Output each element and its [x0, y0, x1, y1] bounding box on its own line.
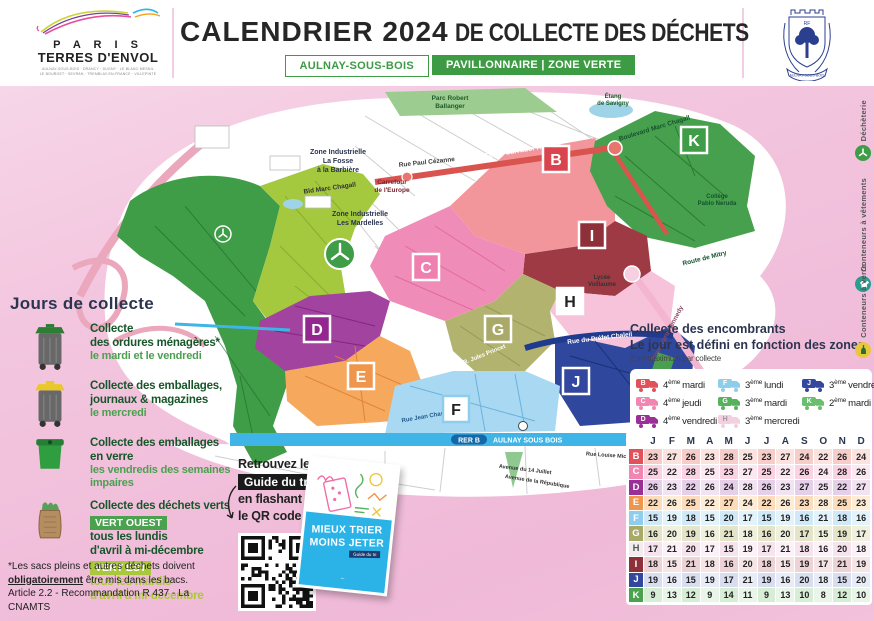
list-item-household-waste: Collectedes ordures ménagères* le mardi …	[10, 323, 234, 371]
calendar-date-cell: 24	[720, 480, 738, 494]
legend-day-text: 3èmevendredi	[829, 379, 874, 391]
calendar-date-cell: 24	[795, 449, 813, 463]
calendar-date-cell: 18	[682, 511, 700, 525]
calendar-date-cell: 22	[701, 496, 719, 510]
page-title-main: CALENDRIER 2024	[180, 16, 449, 47]
recycling-center-icon	[325, 239, 355, 269]
zone-badge: PAVILLONNAIRE | ZONE VERTE	[432, 55, 635, 75]
calendar-zone-row: B232726232825232724222624	[628, 449, 870, 463]
calendar-date-cell: 18	[852, 542, 870, 556]
calendar-date-cell: 23	[701, 449, 719, 463]
label-rer-b: RER B	[458, 438, 480, 445]
vert-ouest-badge: VERT OUEST	[90, 516, 167, 530]
calendar-date-cell: 25	[739, 449, 757, 463]
label-zi-mardelles: Zone Industrielle	[332, 211, 388, 218]
logo-terres-text: TERRES D'ENVOL	[28, 50, 168, 65]
truck-icon-zone-j: J	[802, 379, 825, 392]
calendar-zone-row: H172120171519172118162018	[628, 542, 870, 556]
svg-text:C: C	[420, 260, 432, 277]
truck-icon-zone-g: G	[718, 397, 741, 410]
footnote: *Les sacs pleins et autres déchets doive…	[8, 560, 233, 614]
calendar-month-header: M	[720, 434, 738, 448]
calendar-date-cell: 21	[833, 557, 851, 571]
calendar-zone-row: D262322262428262327252227	[628, 480, 870, 494]
svg-text:RF: RF	[804, 21, 811, 27]
calendar-date-cell: 25	[682, 496, 700, 510]
glass-container-icon	[10, 437, 90, 491]
zone-k-badge: K	[681, 127, 707, 153]
calendar-date-cell: 23	[644, 449, 662, 463]
calendar-zone-row: F151918152017151916211816	[628, 511, 870, 525]
pond-west	[283, 199, 303, 209]
legend-day-text: 3èmemercredi	[745, 415, 800, 427]
header: P A R I S TERRES D'ENVOL AULNAY-SOUS-BOI…	[0, 0, 874, 86]
calendar-date-cell: 19	[644, 573, 662, 587]
crest-banner-text: AULNAY-SOUS-BOIS	[790, 74, 826, 78]
encombrants-legend-item: D4èmevendredi	[636, 415, 718, 428]
calendar-date-cell: 23	[795, 496, 813, 510]
bulky-waste-title: Collecte des encombrants	[630, 322, 786, 336]
calendar-date-cell: 26	[644, 480, 662, 494]
calendar-date-cell: 9	[644, 588, 662, 602]
calendar-month-header: J	[758, 434, 776, 448]
calendar-date-cell: 19	[852, 557, 870, 571]
roundabout-kennedy	[624, 266, 640, 282]
calendar-date-cell: 26	[758, 480, 776, 494]
calendar-date-cell: 23	[720, 465, 738, 479]
calendar-date-cell: 17	[852, 526, 870, 540]
calendar-date-cell: 26	[663, 496, 681, 510]
truck-icon-zone-k: K	[802, 397, 825, 410]
list-item-packaging: Collecte des emballages,journaux & magaz…	[10, 380, 234, 428]
calendar-date-cell: 17	[720, 573, 738, 587]
label-lycee: Lycée	[594, 275, 611, 281]
calendar-date-cell: 27	[852, 480, 870, 494]
calendar-date-cell: 19	[776, 511, 794, 525]
calendar-date-cell: 24	[814, 465, 832, 479]
calendar-date-cell: 28	[814, 496, 832, 510]
calendar-zone-row: C252228252327252226242826	[628, 465, 870, 479]
encombrants-legend-item: J3èmevendredi	[802, 379, 872, 392]
calendar-date-cell: 11	[739, 588, 757, 602]
label-carrefour-europe: Carrefour	[377, 179, 407, 186]
zone-c-badge: C	[413, 254, 439, 280]
svg-text:G: G	[492, 322, 504, 339]
calendar-zone-letter: K	[629, 588, 643, 602]
encombrants-legend-item: G3èmemardi	[718, 397, 802, 410]
calendar-date-cell: 15	[682, 573, 700, 587]
encombrants-legend-item: F3èmelundi	[718, 379, 802, 392]
collection-days-panel: Jours de collecte Collectedes ordures mé…	[10, 294, 234, 603]
calendar-month-header: J	[644, 434, 662, 448]
svg-text:de l'Europe: de l'Europe	[374, 187, 410, 194]
truck-icon-zone-b: B	[636, 379, 659, 392]
calendar-date-cell: 25	[814, 480, 832, 494]
zone-d-badge: D	[304, 316, 330, 342]
calendar-date-cell: 15	[701, 511, 719, 525]
calendar-date-cell: 28	[833, 465, 851, 479]
calendar-date-cell: 22	[758, 496, 776, 510]
calendar-date-cell: 22	[644, 496, 662, 510]
calendar-zone-row: K91312914119131081210	[628, 588, 870, 602]
calendar-date-cell: 15	[814, 526, 832, 540]
calendar-date-cell: 21	[720, 526, 738, 540]
calendar-zone-letter: D	[629, 480, 643, 494]
svg-text:K: K	[688, 133, 700, 150]
label-parc-robert: Parc Robert	[432, 95, 470, 102]
zone-e-badge: E	[348, 363, 374, 389]
title-block: CALENDRIER 2024DE COLLECTE DES DÉCHETS A…	[180, 0, 740, 86]
calendar-date-cell: 18	[795, 542, 813, 556]
bulky-waste-subtitle: Le jour est défini en fonction des zones	[630, 338, 865, 352]
calendar-date-cell: 17	[739, 511, 757, 525]
sidebar-title: Jours de collecte	[10, 294, 234, 314]
calendar-date-cell: 20	[682, 542, 700, 556]
calendar-date-cell: 27	[776, 449, 794, 463]
zone-b-badge: B	[543, 146, 569, 172]
page-title-rest: DE COLLECTE DES DÉCHETS	[455, 19, 749, 48]
legend-day-text: 4èmemardi	[663, 379, 705, 391]
calendar-zone-letter: J	[629, 573, 643, 587]
calendar-date-cell: 14	[720, 588, 738, 602]
label-etang: Étang	[605, 92, 622, 100]
calendar-date-cell: 27	[739, 465, 757, 479]
calendar-date-cell: 28	[682, 465, 700, 479]
agency-logo: P A R I S TERRES D'ENVOL AULNAY-SOUS-BOI…	[28, 4, 168, 77]
calendar-zone-row: J191615191721191620181520	[628, 573, 870, 587]
calendar-date-cell: 27	[720, 496, 738, 510]
calendar-date-cell: 15	[776, 557, 794, 571]
svg-text:H: H	[564, 294, 576, 311]
calendar-date-cell: 17	[814, 557, 832, 571]
sorting-guide-booklet: MIEUX TRIERMOINS JETER Guide du tri ~	[295, 456, 400, 597]
arrow-icon	[224, 484, 238, 524]
calendar-month-header: J	[739, 434, 757, 448]
calendar-date-cell: 15	[663, 557, 681, 571]
calendar-month-header: O	[814, 434, 832, 448]
svg-text:Voillaume: Voillaume	[588, 282, 617, 288]
calendar-date-cell: 17	[701, 542, 719, 556]
calendar-date-cell: 20	[795, 573, 813, 587]
calendar-date-cell: 18	[758, 557, 776, 571]
calendar-date-cell: 19	[663, 511, 681, 525]
svg-text:E: E	[356, 369, 367, 386]
calendar-zone-letter: B	[629, 449, 643, 463]
calendar-date-cell: 22	[776, 465, 794, 479]
calendar-date-cell: 21	[663, 542, 681, 556]
calendar-date-cell: 25	[758, 465, 776, 479]
calendar-date-cell: 15	[720, 542, 738, 556]
calendar-month-header: D	[852, 434, 870, 448]
calendar-date-cell: 21	[739, 573, 757, 587]
bulky-waste-note: 2 m³ maximum par collecte	[630, 354, 872, 363]
calendar-date-cell: 22	[663, 465, 681, 479]
calendar-zone-letter: H	[629, 542, 643, 556]
calendar-date-cell: 16	[758, 526, 776, 540]
encombrants-legend-item: K2èmemardi	[802, 397, 872, 410]
calendar-date-cell: 15	[644, 511, 662, 525]
booklet-logo: ~	[299, 571, 385, 587]
calendar-date-cell: 17	[644, 542, 662, 556]
calendar-zone-row: I181521181620181519172119	[628, 557, 870, 571]
trash-bin-yellow-lid-icon	[10, 380, 90, 428]
zone-h-badge: H	[557, 288, 583, 314]
rail-item-verre: Conteneurs à verre	[855, 264, 871, 358]
calendar-date-cell: 19	[758, 573, 776, 587]
calendar-date-cell: 28	[720, 449, 738, 463]
calendar-date-cell: 17	[758, 542, 776, 556]
header-divider-left	[172, 8, 174, 78]
calendar-month-header: A	[776, 434, 794, 448]
calendar-date-cell: 25	[644, 465, 662, 479]
svg-text:Pablo Neruda: Pablo Neruda	[698, 201, 737, 207]
svg-text:I: I	[590, 228, 594, 245]
station-icon	[519, 422, 528, 431]
svg-text:D: D	[311, 322, 323, 339]
calendar-date-cell: 10	[795, 588, 813, 602]
calendar-date-cell: 16	[701, 526, 719, 540]
glass-bottle-icon	[855, 342, 871, 358]
svg-text:Ballanger: Ballanger	[435, 103, 465, 110]
calendar-zone-letter: E	[629, 496, 643, 510]
calendar-date-cell: 20	[663, 526, 681, 540]
logo-swoosh-icon	[33, 4, 163, 36]
calendar-date-cell: 18	[814, 573, 832, 587]
zone-g-badge: G	[485, 316, 511, 342]
calendar-date-cell: 21	[776, 542, 794, 556]
encombrants-legend-item: C4èmejeudi	[636, 397, 718, 410]
calendar-date-cell: 13	[663, 588, 681, 602]
svg-text:La Fosse: La Fosse	[323, 158, 353, 165]
calendar-date-cell: 19	[701, 573, 719, 587]
zone-f-badge: F	[443, 396, 469, 422]
calendar-date-cell: 26	[833, 449, 851, 463]
calendar-month-header: A	[701, 434, 719, 448]
poster: Parc Robert Ballanger Zone Industrielle …	[0, 0, 874, 621]
rail-item-dechetterie: Déchèterie	[855, 100, 871, 161]
truck-icon-zone-f: F	[718, 379, 741, 392]
calendar-date-cell: 12	[682, 588, 700, 602]
truck-icon-zone-h: H	[718, 415, 741, 428]
trash-bin-green-lid-icon	[10, 323, 90, 371]
calendar-date-cell: 26	[852, 465, 870, 479]
calendar-date-cell: 15	[833, 573, 851, 587]
calendar-date-cell: 23	[758, 449, 776, 463]
calendar-date-cell: 28	[739, 480, 757, 494]
calendar-date-cell: 19	[833, 526, 851, 540]
calendar-date-cell: 20	[776, 526, 794, 540]
calendar-date-cell: 24	[852, 449, 870, 463]
calendar-date-cell: 22	[833, 480, 851, 494]
calendar-month-header: N	[833, 434, 851, 448]
calendar-date-cell: 16	[814, 542, 832, 556]
svg-text:à la Barbière: à la Barbière	[317, 167, 359, 174]
calendar-date-cell: 26	[795, 465, 813, 479]
calendar-date-cell: 22	[682, 480, 700, 494]
truck-icon-zone-c: C	[636, 397, 659, 410]
calendar-date-cell: 27	[795, 480, 813, 494]
calendar-date-cell: 21	[682, 557, 700, 571]
calendar-date-cell: 16	[852, 511, 870, 525]
calendar-date-cell: 16	[720, 557, 738, 571]
calendar-date-cell: 20	[833, 542, 851, 556]
calendar-date-cell: 25	[701, 465, 719, 479]
calendar-zone-row: E222625222724222623282523	[628, 496, 870, 510]
calendar-date-cell: 12	[833, 588, 851, 602]
calendar-zone-letter: G	[629, 526, 643, 540]
calendar-date-cell: 18	[833, 511, 851, 525]
recycling-point-icon	[215, 226, 231, 242]
legend-day-text: 2èmemardi	[829, 397, 871, 409]
calendar-date-cell: 8	[814, 588, 832, 602]
calendar-date-cell: 16	[776, 573, 794, 587]
svg-text:J: J	[572, 374, 581, 391]
calendar-date-cell: 23	[663, 480, 681, 494]
booklet-badge: Guide du tri	[349, 551, 380, 559]
calendar-date-cell: 26	[682, 449, 700, 463]
calendar-corner	[629, 434, 643, 448]
list-item-glass: Collecte des emballages en verre les ven…	[10, 437, 234, 491]
calendar-date-cell: 18	[644, 557, 662, 571]
calendar-date-cell: 18	[701, 557, 719, 571]
svg-text:F: F	[451, 402, 461, 419]
calendar-zone-letter: I	[629, 557, 643, 571]
calendar-date-cell: 19	[682, 526, 700, 540]
calendar-date-cell: 20	[739, 557, 757, 571]
label-college: Collège	[706, 194, 728, 200]
svg-text:de Savigny: de Savigny	[597, 101, 629, 107]
calendar-date-cell: 22	[814, 449, 832, 463]
calendar-date-cell: 23	[776, 480, 794, 494]
calendar-date-cell: 13	[776, 588, 794, 602]
legend-day-text: 4èmejeudi	[663, 397, 701, 409]
truck-icon-zone-d: D	[636, 415, 659, 428]
legend-day-text: 3èmelundi	[745, 379, 783, 391]
calendar-date-cell: 9	[758, 588, 776, 602]
label-zi-fosse: Zone Industrielle	[310, 149, 366, 156]
legend-day-text: 4èmevendredi	[663, 415, 717, 427]
calendar-date-cell: 27	[663, 449, 681, 463]
booklet-cover-bottom: MIEUX TRIERMOINS JETER Guide du tri ~	[299, 512, 392, 594]
calendar-date-cell: 20	[720, 511, 738, 525]
zone-i-badge: I	[579, 222, 605, 248]
encombrants-legend-item: B4èmemardi	[636, 379, 718, 392]
calendar-date-cell: 10	[852, 588, 870, 602]
calendar-month-header: S	[795, 434, 813, 448]
calendar-month-header: F	[663, 434, 681, 448]
calendar-date-cell: 18	[739, 526, 757, 540]
zone-j-badge: J	[563, 368, 589, 394]
encombrants-legend-item: H3èmemercredi	[718, 415, 802, 428]
calendar-table: JFMAMJJASONDB232726232825232724222624C25…	[626, 431, 872, 605]
svg-text:B: B	[550, 152, 562, 169]
calendar-date-cell: 26	[701, 480, 719, 494]
calendar-date-cell: 16	[644, 526, 662, 540]
calendar-date-cell: 17	[795, 526, 813, 540]
svg-text:Les Mardelles: Les Mardelles	[337, 220, 383, 227]
calendar-date-cell: 19	[739, 542, 757, 556]
calendar-date-cell: 23	[852, 496, 870, 510]
calendar-date-cell: 9	[701, 588, 719, 602]
calendar-date-cell: 24	[739, 496, 757, 510]
calendar-month-header: M	[682, 434, 700, 448]
legend-day-text: 3èmemardi	[745, 397, 787, 409]
recycling-center-icon	[855, 145, 871, 161]
city-badge: AULNAY-SOUS-BOIS	[285, 55, 429, 77]
calendar-zone-letter: C	[629, 465, 643, 479]
calendar-date-cell: 25	[833, 496, 851, 510]
calendar-date-cell: 21	[814, 511, 832, 525]
calendar-date-cell: 15	[758, 511, 776, 525]
calendar-date-cell: 16	[795, 511, 813, 525]
calendar-date-cell: 20	[852, 573, 870, 587]
calendar-date-cell: 26	[776, 496, 794, 510]
calendar-zone-letter: F	[629, 511, 643, 525]
label-aulnay-sous-bois: AULNAY SOUS BOIS	[493, 438, 563, 445]
calendar-date-cell: 16	[663, 573, 681, 587]
city-crest: RF AULNAY-SOUS-BOIS	[764, 5, 850, 81]
calendar-zone-row: G162019162118162017151917	[628, 526, 870, 540]
calendar-date-cell: 19	[795, 557, 813, 571]
